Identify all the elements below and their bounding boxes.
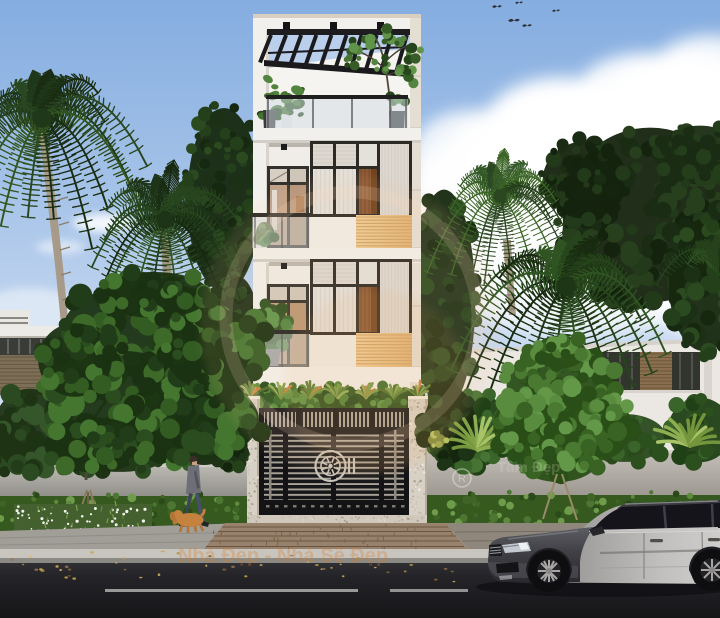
svg-text:R: R (458, 473, 466, 485)
svg-text:Nhà Đẹp - Nhà Sẽ Đẹp: Nhà Đẹp - Nhà Sẽ Đẹp (178, 545, 388, 567)
svg-text:Tâm Đẹp: Tâm Đẹp (497, 459, 560, 476)
